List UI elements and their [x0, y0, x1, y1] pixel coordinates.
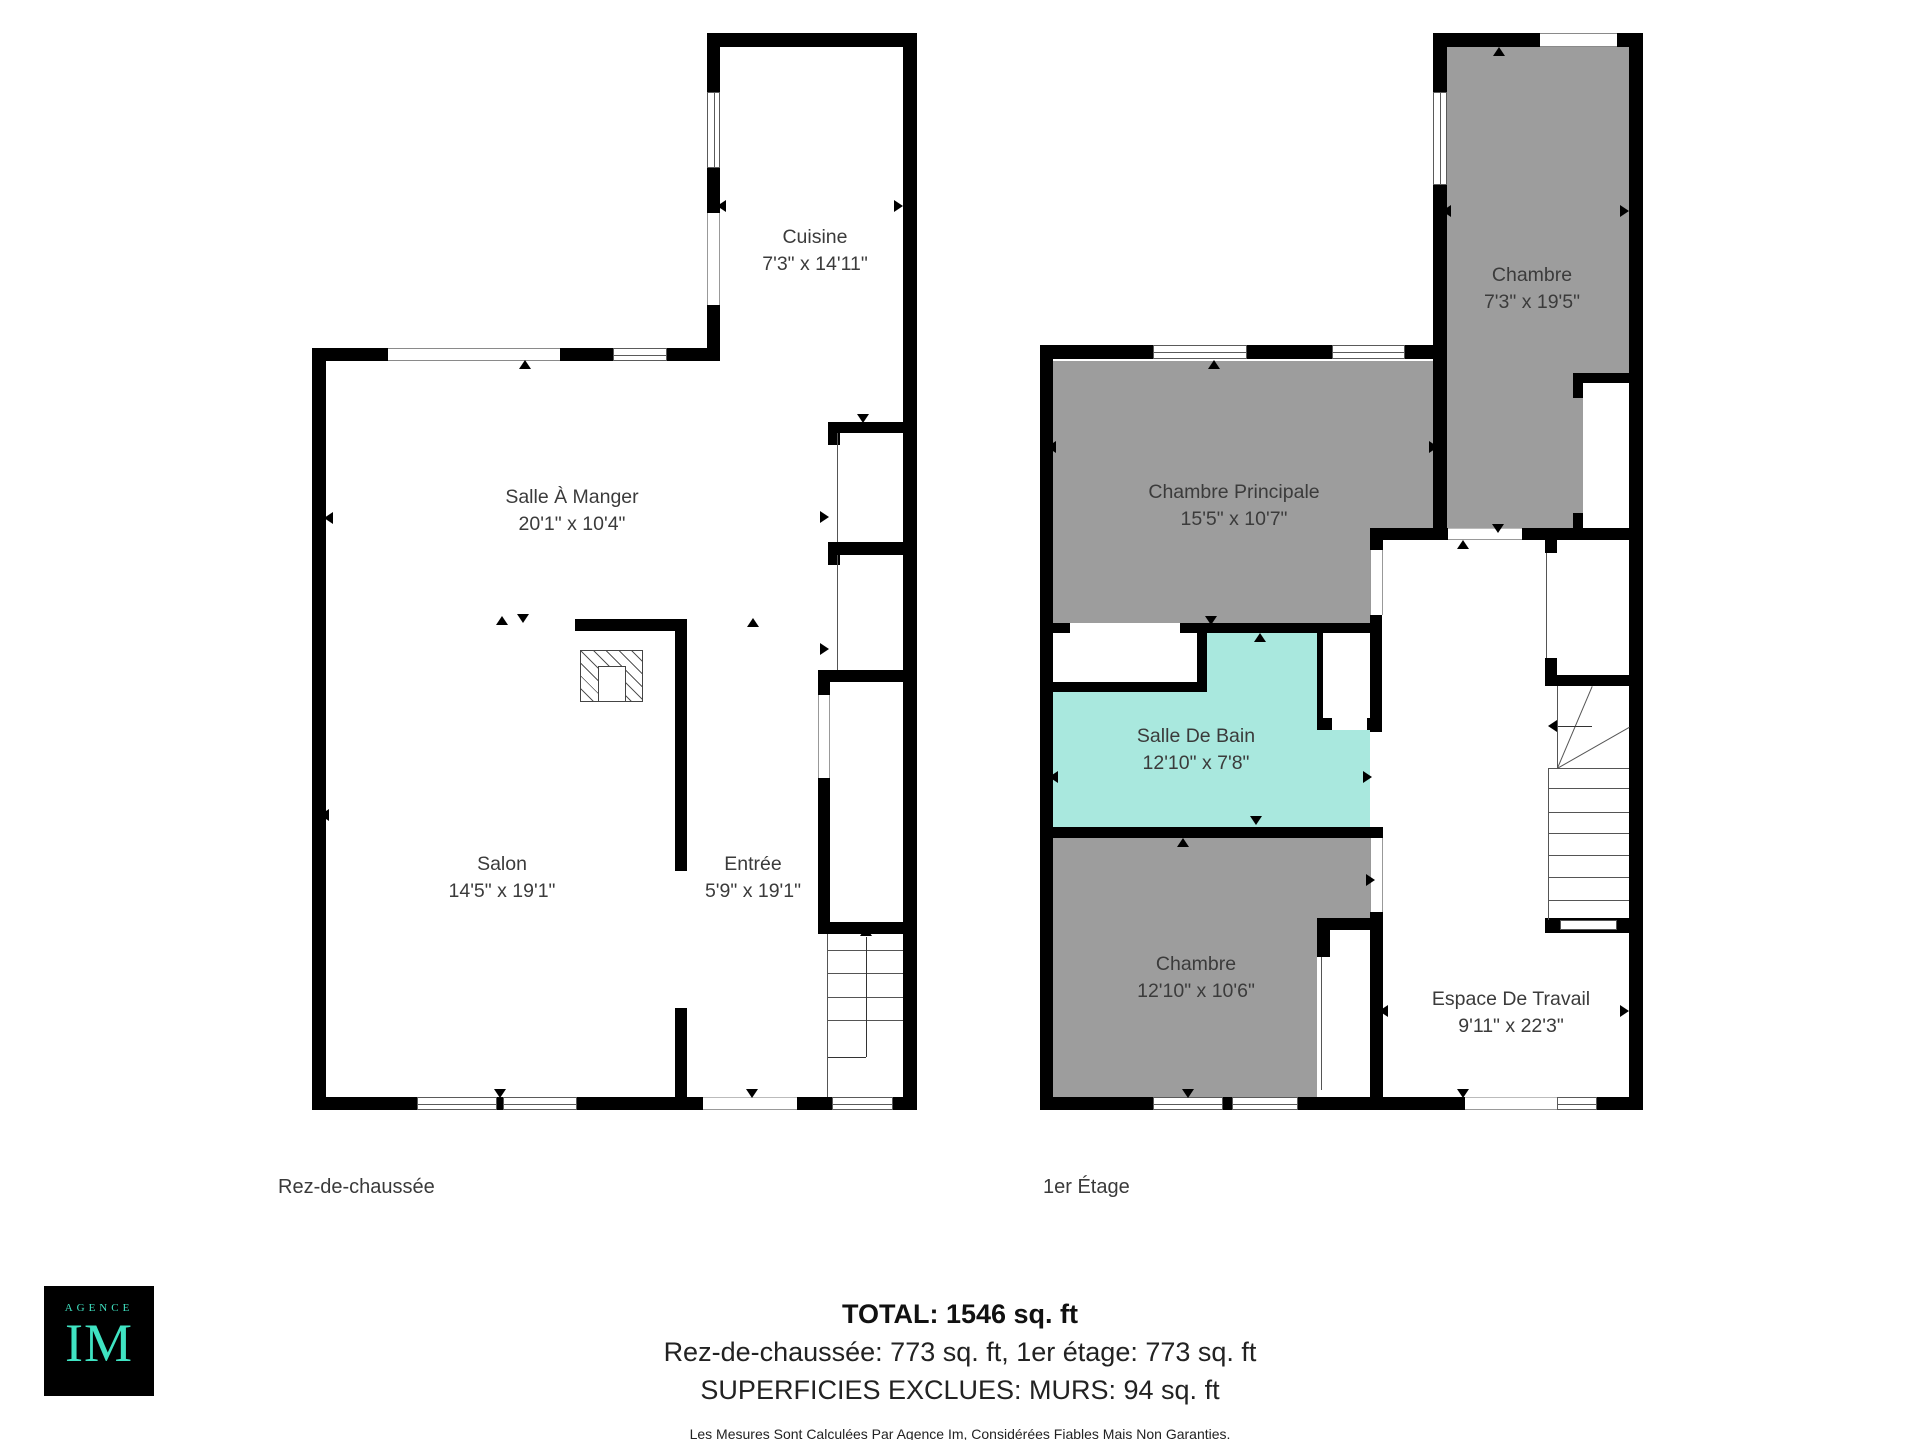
- wall: [1545, 658, 1557, 686]
- window: [503, 1097, 577, 1110]
- stair-tread: [1548, 768, 1629, 769]
- door-marker-icon: [820, 511, 829, 523]
- stair-tread: [1548, 788, 1629, 789]
- stair-winder-line: [1557, 727, 1630, 769]
- door-marker-icon: [1493, 47, 1505, 56]
- floor-label-ground: Rez-de-chaussée: [278, 1176, 435, 1199]
- landing-pocket: [1583, 382, 1629, 530]
- window: [1153, 345, 1247, 359]
- wall: [667, 348, 720, 361]
- door-marker-icon: [494, 1089, 506, 1098]
- wall: [1573, 513, 1583, 530]
- stair-arrow-line: [1558, 726, 1592, 727]
- shower-pocket: [1323, 633, 1370, 730]
- entry-door-opening: [703, 1097, 797, 1110]
- wall: [1317, 918, 1372, 930]
- room-dims: 7'3" x 19'5": [1372, 289, 1692, 316]
- stair-tread: [1548, 877, 1629, 878]
- patio-opening: [388, 348, 560, 361]
- wall: [1053, 623, 1070, 633]
- stair-tread: [1548, 812, 1629, 813]
- window: [1153, 1097, 1223, 1110]
- room-dims: 20'1" x 10'4": [412, 511, 732, 538]
- wall: [1405, 345, 1447, 359]
- wall: [818, 670, 903, 682]
- wall: [1629, 33, 1643, 1110]
- door-opening: [1370, 550, 1383, 615]
- door-marker-icon: [1620, 205, 1629, 217]
- wall: [1433, 185, 1447, 540]
- closet-door-line: [837, 555, 838, 670]
- wall: [1053, 682, 1207, 692]
- wall: [1545, 540, 1557, 553]
- totals-block: TOTAL: 1546 sq. ft Rez-de-chaussée: 773 …: [0, 1295, 1920, 1440]
- wall: [1597, 1097, 1643, 1110]
- room-name: Espace De Travail: [1351, 986, 1671, 1013]
- wall: [828, 422, 840, 445]
- wall: [575, 619, 686, 631]
- door-marker-icon: [820, 643, 829, 655]
- wall: [1557, 675, 1633, 686]
- door-marker-icon: [1177, 838, 1189, 847]
- total-area: TOTAL: 1546 sq. ft: [0, 1295, 1920, 1333]
- wall: [312, 348, 326, 1110]
- room-label-chambre-top: Chambre 7'3" x 19'5": [1372, 262, 1692, 316]
- room-dims: 12'10" x 10'6": [1036, 978, 1356, 1005]
- door-marker-icon: [1442, 205, 1451, 217]
- wall: [1573, 373, 1629, 383]
- room-label-espace-de-travail: Espace De Travail 9'11" x 22'3": [1351, 986, 1671, 1040]
- door-marker-icon: [1457, 1089, 1469, 1098]
- wall: [1573, 383, 1583, 398]
- wall: [1040, 827, 1383, 838]
- door-marker-icon: [1205, 616, 1217, 625]
- door-marker-icon: [746, 1089, 758, 1098]
- stair-up-arrow-icon: [860, 927, 872, 936]
- door-marker-icon: [1250, 816, 1262, 825]
- window-marker-icon: [1208, 360, 1220, 369]
- wall: [1367, 718, 1382, 730]
- door-marker-icon: [1363, 771, 1372, 783]
- under-stair-door: [1560, 920, 1617, 930]
- stair-arrow-line: [866, 937, 867, 1057]
- room-fill-chambre-principale: [1053, 528, 1370, 623]
- room-dims: 5'9" x 19'1": [593, 878, 913, 905]
- door-marker-icon: [1429, 441, 1438, 453]
- window: [1540, 33, 1617, 47]
- closet-door-line: [837, 433, 838, 542]
- fireplace-insert: [598, 666, 626, 702]
- room-label-entree: Entrée 5'9" x 19'1": [593, 851, 913, 905]
- door-marker-icon: [1047, 441, 1056, 453]
- wall: [818, 670, 830, 695]
- wall: [1298, 1097, 1465, 1110]
- wall: [675, 1008, 687, 1097]
- wall: [675, 619, 687, 871]
- wall: [1317, 633, 1323, 730]
- room-name: Salle De Bain: [1036, 723, 1356, 750]
- wall: [1040, 345, 1153, 359]
- passage-marker-icon: [747, 618, 759, 627]
- wall: [1247, 345, 1332, 359]
- wall: [707, 33, 917, 47]
- floor-label-first: 1er Étage: [1043, 1176, 1130, 1199]
- window: [707, 92, 720, 168]
- room-label-chambre-bottom: Chambre 12'10" x 10'6": [1036, 951, 1356, 1005]
- room-label-chambre-principale: Chambre Principale 15'5" x 10'7": [1074, 479, 1394, 533]
- stair-winder-line: [1557, 686, 1558, 768]
- wall: [577, 1097, 703, 1110]
- door-opening: [818, 695, 830, 778]
- door-marker-icon: [717, 200, 726, 212]
- wall: [1433, 33, 1540, 47]
- wall: [560, 348, 613, 361]
- room-name: Entrée: [593, 851, 913, 878]
- window: [1557, 1097, 1597, 1110]
- door-marker-icon: [1182, 1089, 1194, 1098]
- disclaimer-text: Les Mesures Sont Calculées Par Agence Im…: [0, 1426, 1920, 1440]
- door-marker-icon: [324, 512, 333, 524]
- room-name: Salle À Manger: [412, 484, 732, 511]
- passage-marker-icon: [517, 614, 529, 623]
- wall: [1040, 1097, 1153, 1110]
- railing-line: [1546, 553, 1547, 658]
- room-dims: 9'11" x 22'3": [1351, 1013, 1671, 1040]
- room-name: Chambre: [1036, 951, 1356, 978]
- wall: [903, 33, 917, 1110]
- stair-tread: [1548, 833, 1629, 834]
- window: [1232, 1097, 1298, 1110]
- stair-tread: [1548, 855, 1629, 856]
- agency-logo: AGENCE IM: [44, 1286, 154, 1396]
- room-name: Cuisine: [655, 224, 975, 251]
- door-marker-icon: [320, 809, 329, 821]
- door-marker-icon: [894, 200, 903, 212]
- room-name: Chambre: [1372, 262, 1692, 289]
- window: [832, 1097, 893, 1110]
- door-marker-icon: [1254, 633, 1266, 642]
- floor-breakdown: Rez-de-chaussée: 773 sq. ft, 1er étage: …: [0, 1333, 1920, 1371]
- floor-plan-page: Cuisine 7'3" x 14'11" Salle À Manger 20'…: [0, 0, 1920, 1440]
- wall: [828, 542, 840, 565]
- door-marker-icon: [1457, 540, 1469, 549]
- window: [613, 348, 667, 361]
- stair-tread: [1548, 900, 1629, 901]
- wall: [797, 1097, 832, 1110]
- door-marker-icon: [1492, 524, 1504, 533]
- wall: [1223, 1097, 1232, 1110]
- room-name: Chambre Principale: [1074, 479, 1394, 506]
- room-label-salle-de-bain: Salle De Bain 12'10" x 7'8": [1036, 723, 1356, 777]
- window: [417, 1097, 497, 1110]
- window: [1332, 345, 1405, 359]
- door-marker-icon: [857, 414, 869, 423]
- stairs-edge: [1548, 768, 1549, 920]
- room-label-cuisine: Cuisine 7'3" x 14'11": [655, 224, 975, 278]
- door-marker-icon: [519, 360, 531, 369]
- stair-winder-line: [1557, 686, 1593, 768]
- room-dims: 7'3" x 14'11": [655, 251, 975, 278]
- room-dims: 12'10" x 7'8": [1036, 750, 1356, 777]
- door-opening: [1448, 528, 1522, 540]
- door-marker-icon: [1366, 874, 1375, 886]
- stairs-edge: [827, 934, 828, 1097]
- stair-down-arrow-icon: [1548, 720, 1557, 732]
- room-label-salle-a-manger: Salle À Manger 20'1" x 10'4": [412, 484, 732, 538]
- stair-arrow-line: [828, 1057, 866, 1058]
- window: [1433, 92, 1447, 185]
- wall: [312, 1097, 417, 1110]
- entry-door-opening: [1465, 1097, 1557, 1110]
- room-dims: 15'5" x 10'7": [1074, 506, 1394, 533]
- passage-marker-icon: [496, 616, 508, 625]
- wall: [893, 1097, 917, 1110]
- agency-logo-main-text: IM: [44, 1314, 154, 1372]
- excluded-areas: SUPERFICIES EXCLUES: MURS: 94 sq. ft: [0, 1371, 1920, 1409]
